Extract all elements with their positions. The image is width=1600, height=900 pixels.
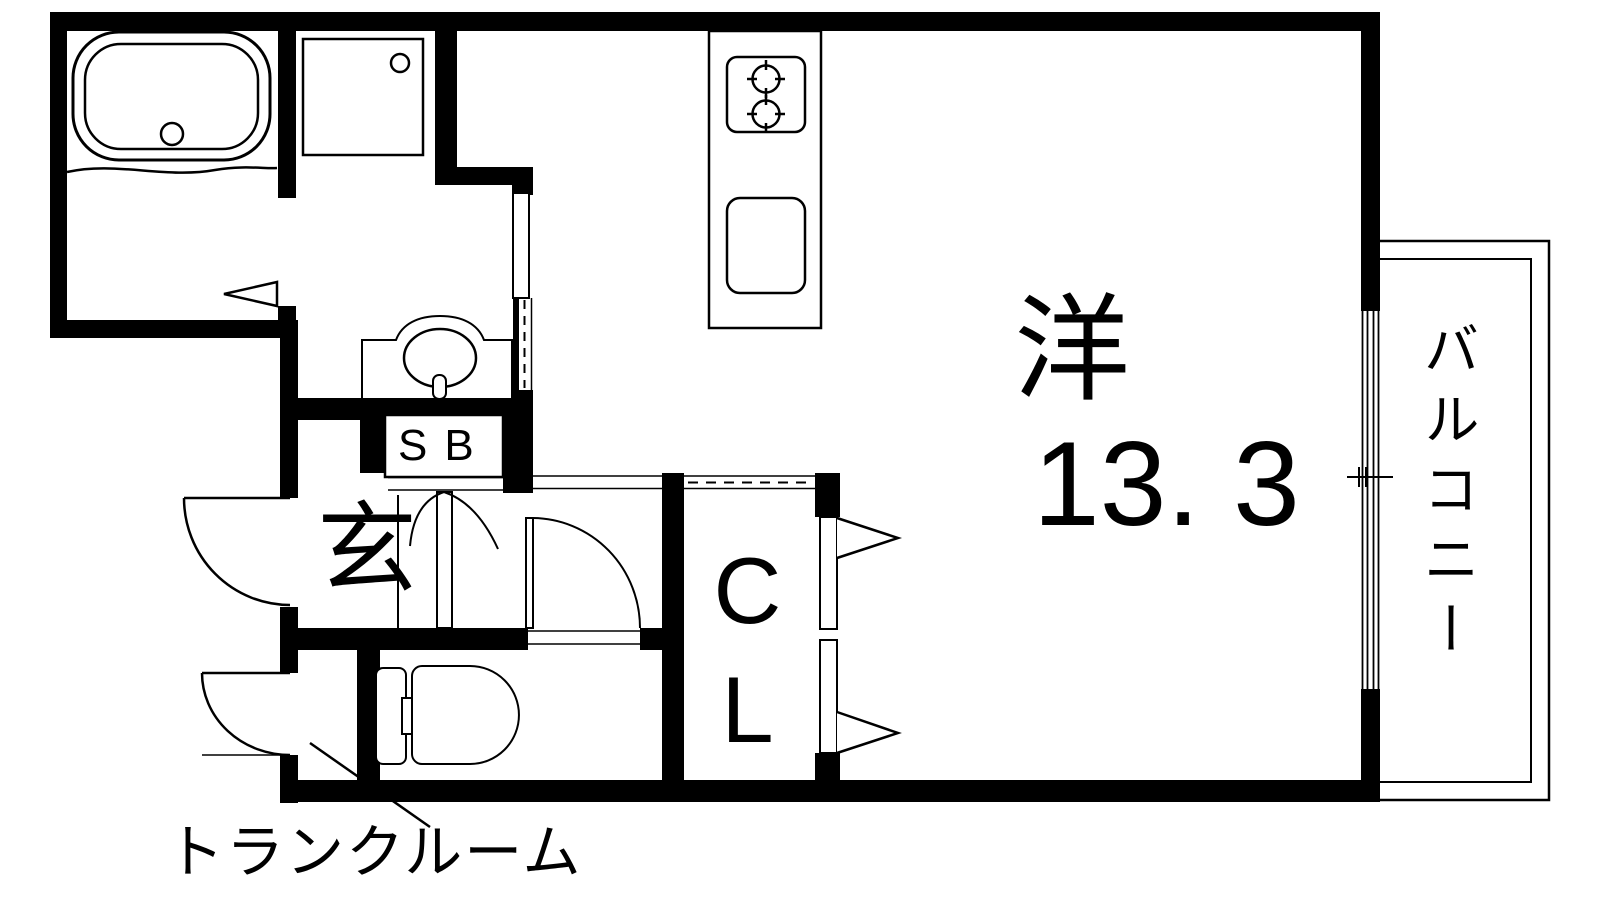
bathroom-floor-line [67,167,277,172]
toilet-bowl [412,666,519,764]
wall-right-upper [1361,12,1380,310]
main-room-area-label: 13. 3 [1033,424,1300,544]
bathtub-outer [73,32,270,160]
balcony-window [1347,310,1393,690]
wall-kitchen-nook-vertical [435,31,457,185]
bathroom [67,32,296,307]
closet-door-leaf-top [820,517,837,629]
genkan-partition-leaf [437,492,452,628]
trunk-room-label: トランクルーム [166,824,583,882]
wall-closet-left [662,473,684,787]
main-room-label: 洋 [1014,292,1130,408]
wall-left-upper [50,12,67,338]
floor-plan-drawing [0,0,1600,900]
bathtub-inner [85,44,258,149]
trunk-door-swing [202,673,290,755]
wall-shoebox-left [360,412,385,473]
wall-bottom [280,780,1380,802]
wall-hall-bottom-left [280,628,528,650]
wall-hall-bottom-right [640,628,664,650]
wall-top [50,12,1380,31]
wall-bath-divider-upper [278,31,296,197]
wall-closet-cap-top [815,473,840,517]
entrance-door-swing [184,498,290,605]
washroom [303,39,512,399]
wall-bathroom-bottom [50,320,298,338]
closet-door-swing-icon-top [837,518,898,558]
wall-right-lower [1361,690,1380,802]
closet-label: CL [700,538,794,776]
toilet-door-swing [533,518,640,628]
wall-shoebox-right [503,412,533,493]
wall-kitchen-nook-horizontal [435,167,533,185]
laundry-faucet-icon [391,54,409,72]
closet-door-leaf-bottom [820,640,837,753]
bathtub-drain [161,123,183,145]
toilet-door-leaf [526,518,533,628]
floor-plan: 玄 SB CL 洋 13. 3 バルコニー トランクルーム [0,0,1600,900]
washbasin-faucet-icon [433,375,446,399]
closet-door-swing-icon-bottom [837,712,898,753]
bathroom-door-icon [224,282,277,306]
wall-bath-divider-lower [278,307,296,338]
shoebox-label: SB [398,424,491,468]
wall-thin-strip [513,298,519,390]
kitchen [709,31,821,328]
entrance-label: 玄 [312,500,422,600]
balcony-label: バルコニー [1419,320,1475,670]
sliding-door-leaf [513,193,529,298]
